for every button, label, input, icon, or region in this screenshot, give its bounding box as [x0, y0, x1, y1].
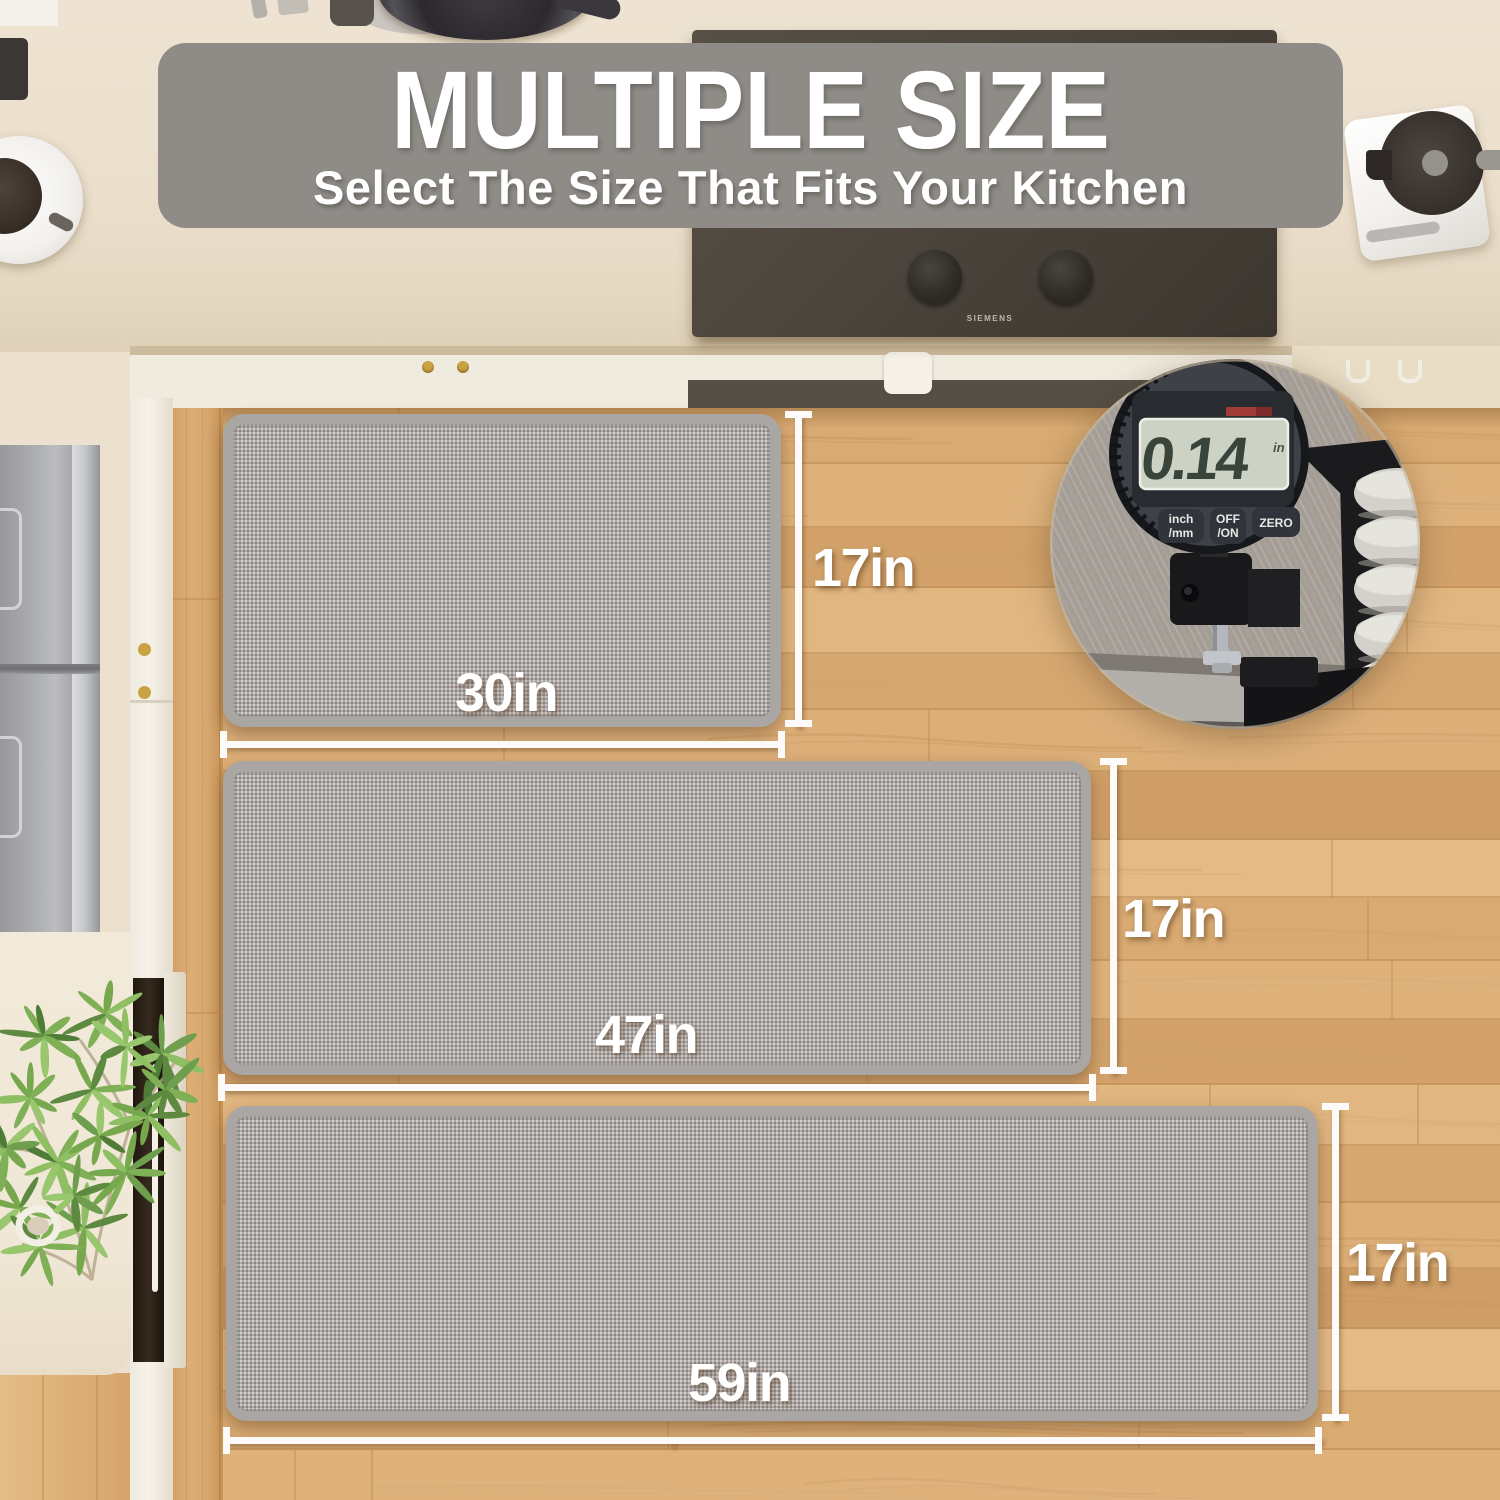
svg-text:/ON: /ON [1217, 526, 1238, 540]
svg-text:/mm: /mm [1169, 526, 1194, 540]
svg-text:in: in [1273, 440, 1285, 455]
svg-text:ZERO: ZERO [1259, 516, 1292, 530]
svg-text:inch: inch [1169, 512, 1194, 526]
svg-text:0.14: 0.14 [1137, 424, 1254, 492]
svg-text:OFF: OFF [1216, 512, 1240, 526]
